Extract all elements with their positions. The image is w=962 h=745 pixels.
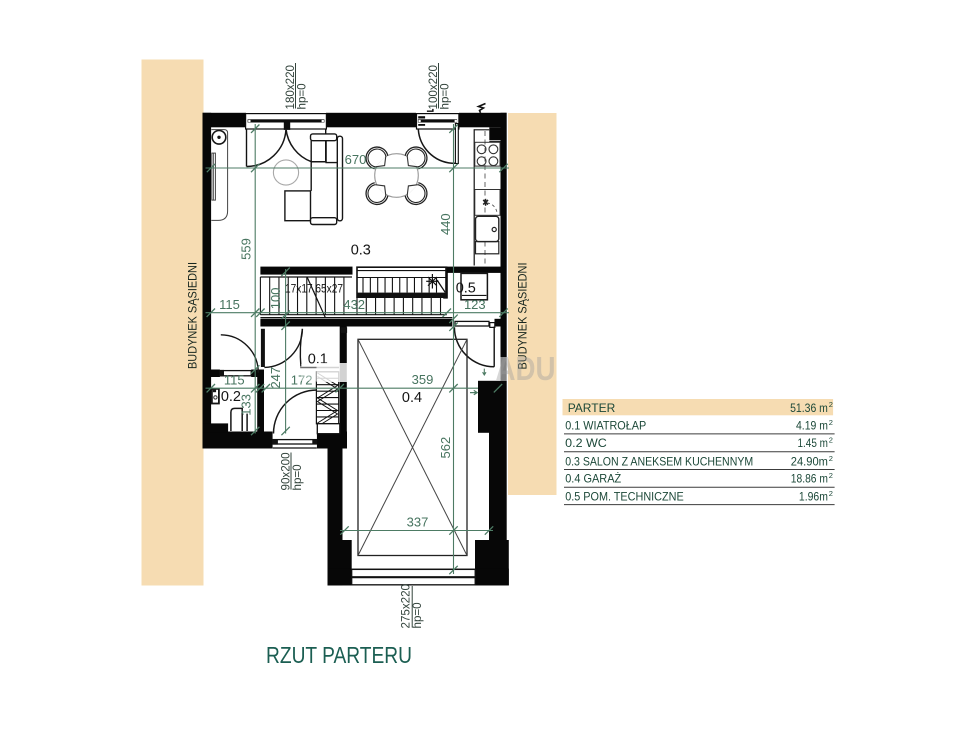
svg-text:0.2 WC: 0.2 WC xyxy=(565,436,607,450)
svg-text:hp=0: hp=0 xyxy=(291,464,304,490)
svg-text:0.4 GARAŻ: 0.4 GARAŻ xyxy=(565,472,621,486)
svg-text:51.36 m: 51.36 m xyxy=(790,401,828,415)
svg-text:2: 2 xyxy=(829,454,833,463)
svg-text:670: 670 xyxy=(345,152,367,167)
svg-text:hp=0: hp=0 xyxy=(296,83,309,109)
svg-text:0.5 POM. TECHNICZNE: 0.5 POM. TECHNICZNE xyxy=(565,490,684,504)
svg-text:0.3: 0.3 xyxy=(351,243,371,259)
svg-text:17x17.65x27: 17x17.65x27 xyxy=(285,282,343,296)
svg-text:2: 2 xyxy=(829,471,833,480)
svg-text:440: 440 xyxy=(438,213,453,235)
svg-text:559: 559 xyxy=(239,238,254,260)
svg-text:1.45 m: 1.45 m xyxy=(798,436,828,450)
svg-text:359: 359 xyxy=(412,372,434,387)
svg-text:hp=0: hp=0 xyxy=(411,602,424,628)
svg-text:562: 562 xyxy=(438,437,453,459)
svg-text:2: 2 xyxy=(829,418,833,427)
svg-text:1.96m: 1.96m xyxy=(799,490,828,504)
svg-text:BUDYNEK SĄSIEDNI: BUDYNEK SĄSIEDNI xyxy=(185,262,199,369)
svg-text:0.3 SALON Z ANEKSEM KUCHENNYM: 0.3 SALON Z ANEKSEM KUCHENNYM xyxy=(565,455,753,469)
svg-text:247: 247 xyxy=(268,367,283,389)
svg-text:hp=0: hp=0 xyxy=(439,83,452,109)
svg-text:0.5: 0.5 xyxy=(456,280,476,296)
svg-text:337: 337 xyxy=(407,515,429,530)
svg-text:0.1 WIATROŁAP: 0.1 WIATROŁAP xyxy=(565,419,646,433)
svg-text:115: 115 xyxy=(219,297,240,312)
svg-text:24.90m: 24.90m xyxy=(791,455,828,469)
svg-text:2: 2 xyxy=(829,436,833,445)
svg-text:100: 100 xyxy=(268,288,283,310)
svg-text:432: 432 xyxy=(343,297,365,312)
svg-text:2: 2 xyxy=(829,400,833,409)
svg-text:0.2: 0.2 xyxy=(221,389,241,405)
svg-text:4.19 m: 4.19 m xyxy=(796,419,828,433)
svg-text:123: 123 xyxy=(464,297,486,312)
svg-text:18.86 m: 18.86 m xyxy=(791,472,828,486)
svg-text:PARTER: PARTER xyxy=(568,401,616,415)
svg-text:2: 2 xyxy=(829,489,833,498)
svg-text:115: 115 xyxy=(224,372,245,387)
svg-text:0.4: 0.4 xyxy=(402,390,422,406)
svg-text:RZUT PARTERU: RZUT PARTERU xyxy=(266,642,412,668)
svg-text:ADU: ADU xyxy=(496,350,556,387)
